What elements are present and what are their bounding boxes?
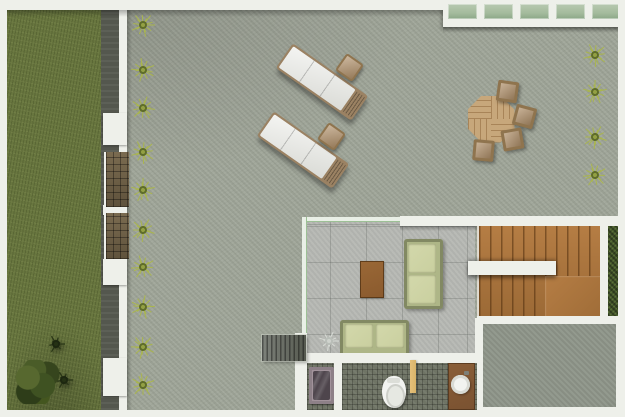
- shrub-plant: [125, 90, 161, 126]
- dining-chair: [500, 127, 524, 151]
- shrub-plant: [129, 138, 156, 165]
- floor-plan-canvas: [0, 0, 625, 417]
- indoor-plant: [316, 328, 342, 354]
- chair-seat: [515, 107, 533, 125]
- table-parquet: [468, 96, 492, 120]
- dining-chair: [511, 103, 537, 129]
- shrub-plant: [126, 173, 161, 208]
- chair-seat: [475, 142, 491, 158]
- shrub-plant: [125, 52, 160, 87]
- sun-lounger: [257, 111, 350, 188]
- lounger-cushion: [260, 114, 337, 179]
- furniture-layer: [0, 0, 625, 417]
- entry-tile-mat: [104, 213, 129, 259]
- shrub-plant: [125, 212, 161, 248]
- dining-chair: [472, 139, 495, 162]
- chair-seat: [499, 83, 516, 100]
- dining-chair: [495, 79, 519, 103]
- garden-tree: [51, 367, 77, 393]
- shrub-plant: [578, 75, 613, 110]
- shrub-plant: [129, 253, 158, 282]
- shrub-plant: [581, 161, 610, 190]
- entry-tile-mat: [104, 152, 129, 207]
- sun-lounger: [276, 43, 369, 120]
- walkway-wall-segment: [103, 358, 127, 396]
- chair-seat: [503, 130, 520, 147]
- shrub-plant: [126, 290, 160, 324]
- walkway-wall-segment: [103, 259, 127, 285]
- shrub-plant: [128, 370, 158, 400]
- walkway-wall-segment: [103, 113, 127, 145]
- shrub-plant: [130, 12, 156, 38]
- shrub-plant: [581, 41, 608, 68]
- shrub-plant: [125, 329, 161, 365]
- garden-tree: [43, 331, 69, 357]
- shrub-plant: [577, 119, 613, 155]
